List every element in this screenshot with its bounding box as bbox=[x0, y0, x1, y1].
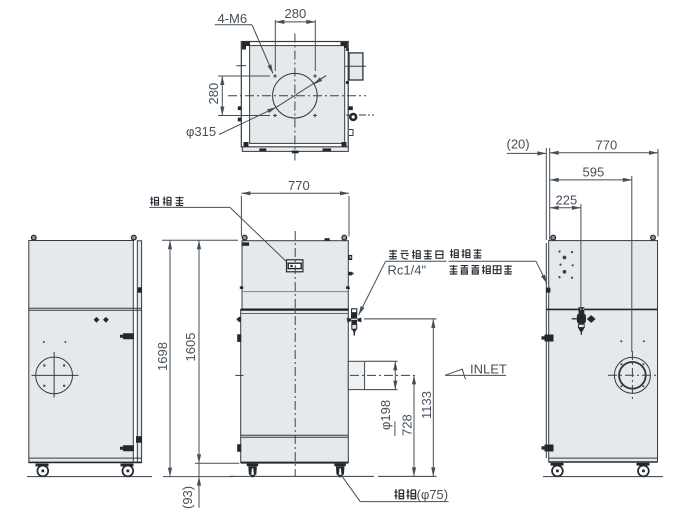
svg-text:(φ75): (φ75) bbox=[417, 487, 449, 502]
svg-text:280: 280 bbox=[285, 6, 307, 21]
svg-text:φ315: φ315 bbox=[186, 124, 216, 139]
svg-text:Rc1/4": Rc1/4" bbox=[388, 263, 427, 278]
svg-text:280: 280 bbox=[206, 83, 221, 105]
svg-text:1698: 1698 bbox=[155, 342, 170, 371]
svg-text:595: 595 bbox=[583, 165, 605, 180]
svg-text:(93): (93) bbox=[180, 486, 195, 509]
svg-text:770: 770 bbox=[596, 138, 618, 153]
svg-text:INLET: INLET bbox=[470, 362, 507, 377]
svg-text:1133: 1133 bbox=[419, 391, 434, 419]
svg-text:4-M6: 4-M6 bbox=[218, 11, 248, 26]
svg-text:(20): (20) bbox=[507, 137, 530, 152]
svg-text:1605: 1605 bbox=[183, 333, 198, 362]
svg-text:770: 770 bbox=[288, 178, 310, 193]
svg-text:728: 728 bbox=[400, 414, 415, 436]
svg-text:225: 225 bbox=[556, 193, 578, 208]
svg-text:φ198: φ198 bbox=[378, 400, 393, 430]
